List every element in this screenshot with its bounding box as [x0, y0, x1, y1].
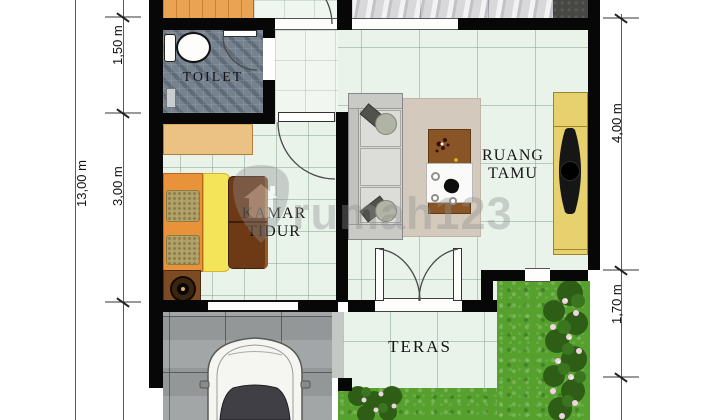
toilet-label-text: TOILET [183, 69, 244, 87]
tick-right-1 [603, 18, 639, 19]
shower-fixture [166, 88, 176, 108]
garden-plants-right [540, 281, 590, 420]
bedroom-desk [163, 124, 253, 155]
toilet-bowl [176, 32, 211, 63]
wall-bedroom-living [336, 112, 348, 302]
tick-right-2 [603, 270, 639, 271]
tick-left-1 [105, 17, 141, 18]
sofa-backrest [349, 109, 359, 224]
tick-left-2 [105, 113, 141, 114]
floor-plan: TOILET KAMAR TIDUR RUANG TAMU TERAS 13,0… [0, 0, 720, 420]
back-room-wood-floor [163, 0, 253, 18]
bedroom-label-line1: KAMAR [242, 205, 307, 223]
living-label-line1: RUANG [482, 147, 544, 165]
wall-living-bottom-left [348, 300, 375, 312]
dimension-terrace-text: 1,70 m [609, 284, 624, 324]
wall-garden-right [550, 270, 588, 281]
garden-step-opening [525, 268, 550, 282]
toilet-tank [164, 34, 176, 62]
counter-pass-through [352, 18, 458, 30]
wall-left [149, 0, 163, 388]
wall-right [588, 0, 600, 270]
terrace-corner-pier [338, 378, 352, 391]
terrace-door-leaf-right [453, 248, 462, 301]
terrace-door-sill [375, 298, 462, 312]
counter-dark-block [553, 0, 588, 18]
terrace-label-text: TERAS [388, 338, 452, 356]
living-label: RUANG TAMU [482, 147, 544, 183]
sofa [348, 93, 403, 240]
bedroom-label: KAMAR TIDUR [242, 205, 307, 241]
bedroom-label-line2: TIDUR [242, 223, 307, 241]
lamp-bulb [181, 287, 185, 291]
sofa-armrest-bottom [349, 224, 402, 239]
bedroom-door-leaf [278, 112, 335, 122]
living-label-line2: TAMU [482, 165, 544, 183]
console-divider-bottom [554, 249, 587, 250]
wall-top-pier [337, 0, 352, 30]
wall-garden-connector [481, 270, 493, 312]
sofa-round-cushion-top [375, 113, 397, 135]
tick-left-3 [105, 302, 141, 303]
dimension-line-right [621, 14, 622, 420]
sofa-cushion-2 [360, 148, 401, 186]
wall-bedroom-bottom-left [149, 300, 208, 312]
wall-garden-left [493, 270, 525, 281]
dimension-living-text: 4,00 m [609, 103, 624, 143]
back-hall-floor [253, 0, 337, 18]
terrace-label: TERAS [388, 338, 452, 356]
wall-top-right [458, 18, 588, 30]
tv [556, 128, 584, 214]
dimension-line-overall [75, 0, 76, 420]
bedroom-window [208, 300, 298, 312]
sofa-armrest-top [349, 94, 402, 109]
kitchen-counter-marble [352, 0, 553, 18]
cup-3 [431, 194, 439, 202]
tick-right-3 [603, 377, 639, 378]
cup-2 [449, 197, 457, 205]
sofa-round-cushion-bottom [375, 200, 397, 222]
carport-edge-strip [332, 312, 343, 378]
bed-pillow-1 [166, 190, 200, 222]
bed-pillow-2 [166, 235, 200, 265]
hallway-floor [275, 30, 338, 124]
vase-black [442, 177, 461, 195]
toilet-door-leaf [223, 30, 257, 37]
terrace-door-leaf-left [375, 248, 384, 301]
wall-toilet-bottom [149, 113, 275, 124]
dimension-bedroom-text: 3,00 m [110, 166, 125, 206]
dimension-toilet-text: 1,50 m [110, 25, 125, 65]
toilet-label: TOILET [183, 69, 244, 87]
wall-toilet-right-upper [263, 30, 275, 38]
side-table-white [426, 163, 473, 203]
wall-bedroom-bottom-right [298, 300, 338, 312]
back-door-opening [275, 18, 337, 30]
garden-plants-bottom [346, 382, 408, 420]
bed-blanket [203, 173, 230, 272]
car [198, 333, 312, 420]
dimension-overall-text: 13,00 m [74, 160, 89, 207]
console-divider-top [554, 126, 587, 127]
cup-1 [431, 172, 440, 181]
wall-top-left [149, 18, 275, 30]
